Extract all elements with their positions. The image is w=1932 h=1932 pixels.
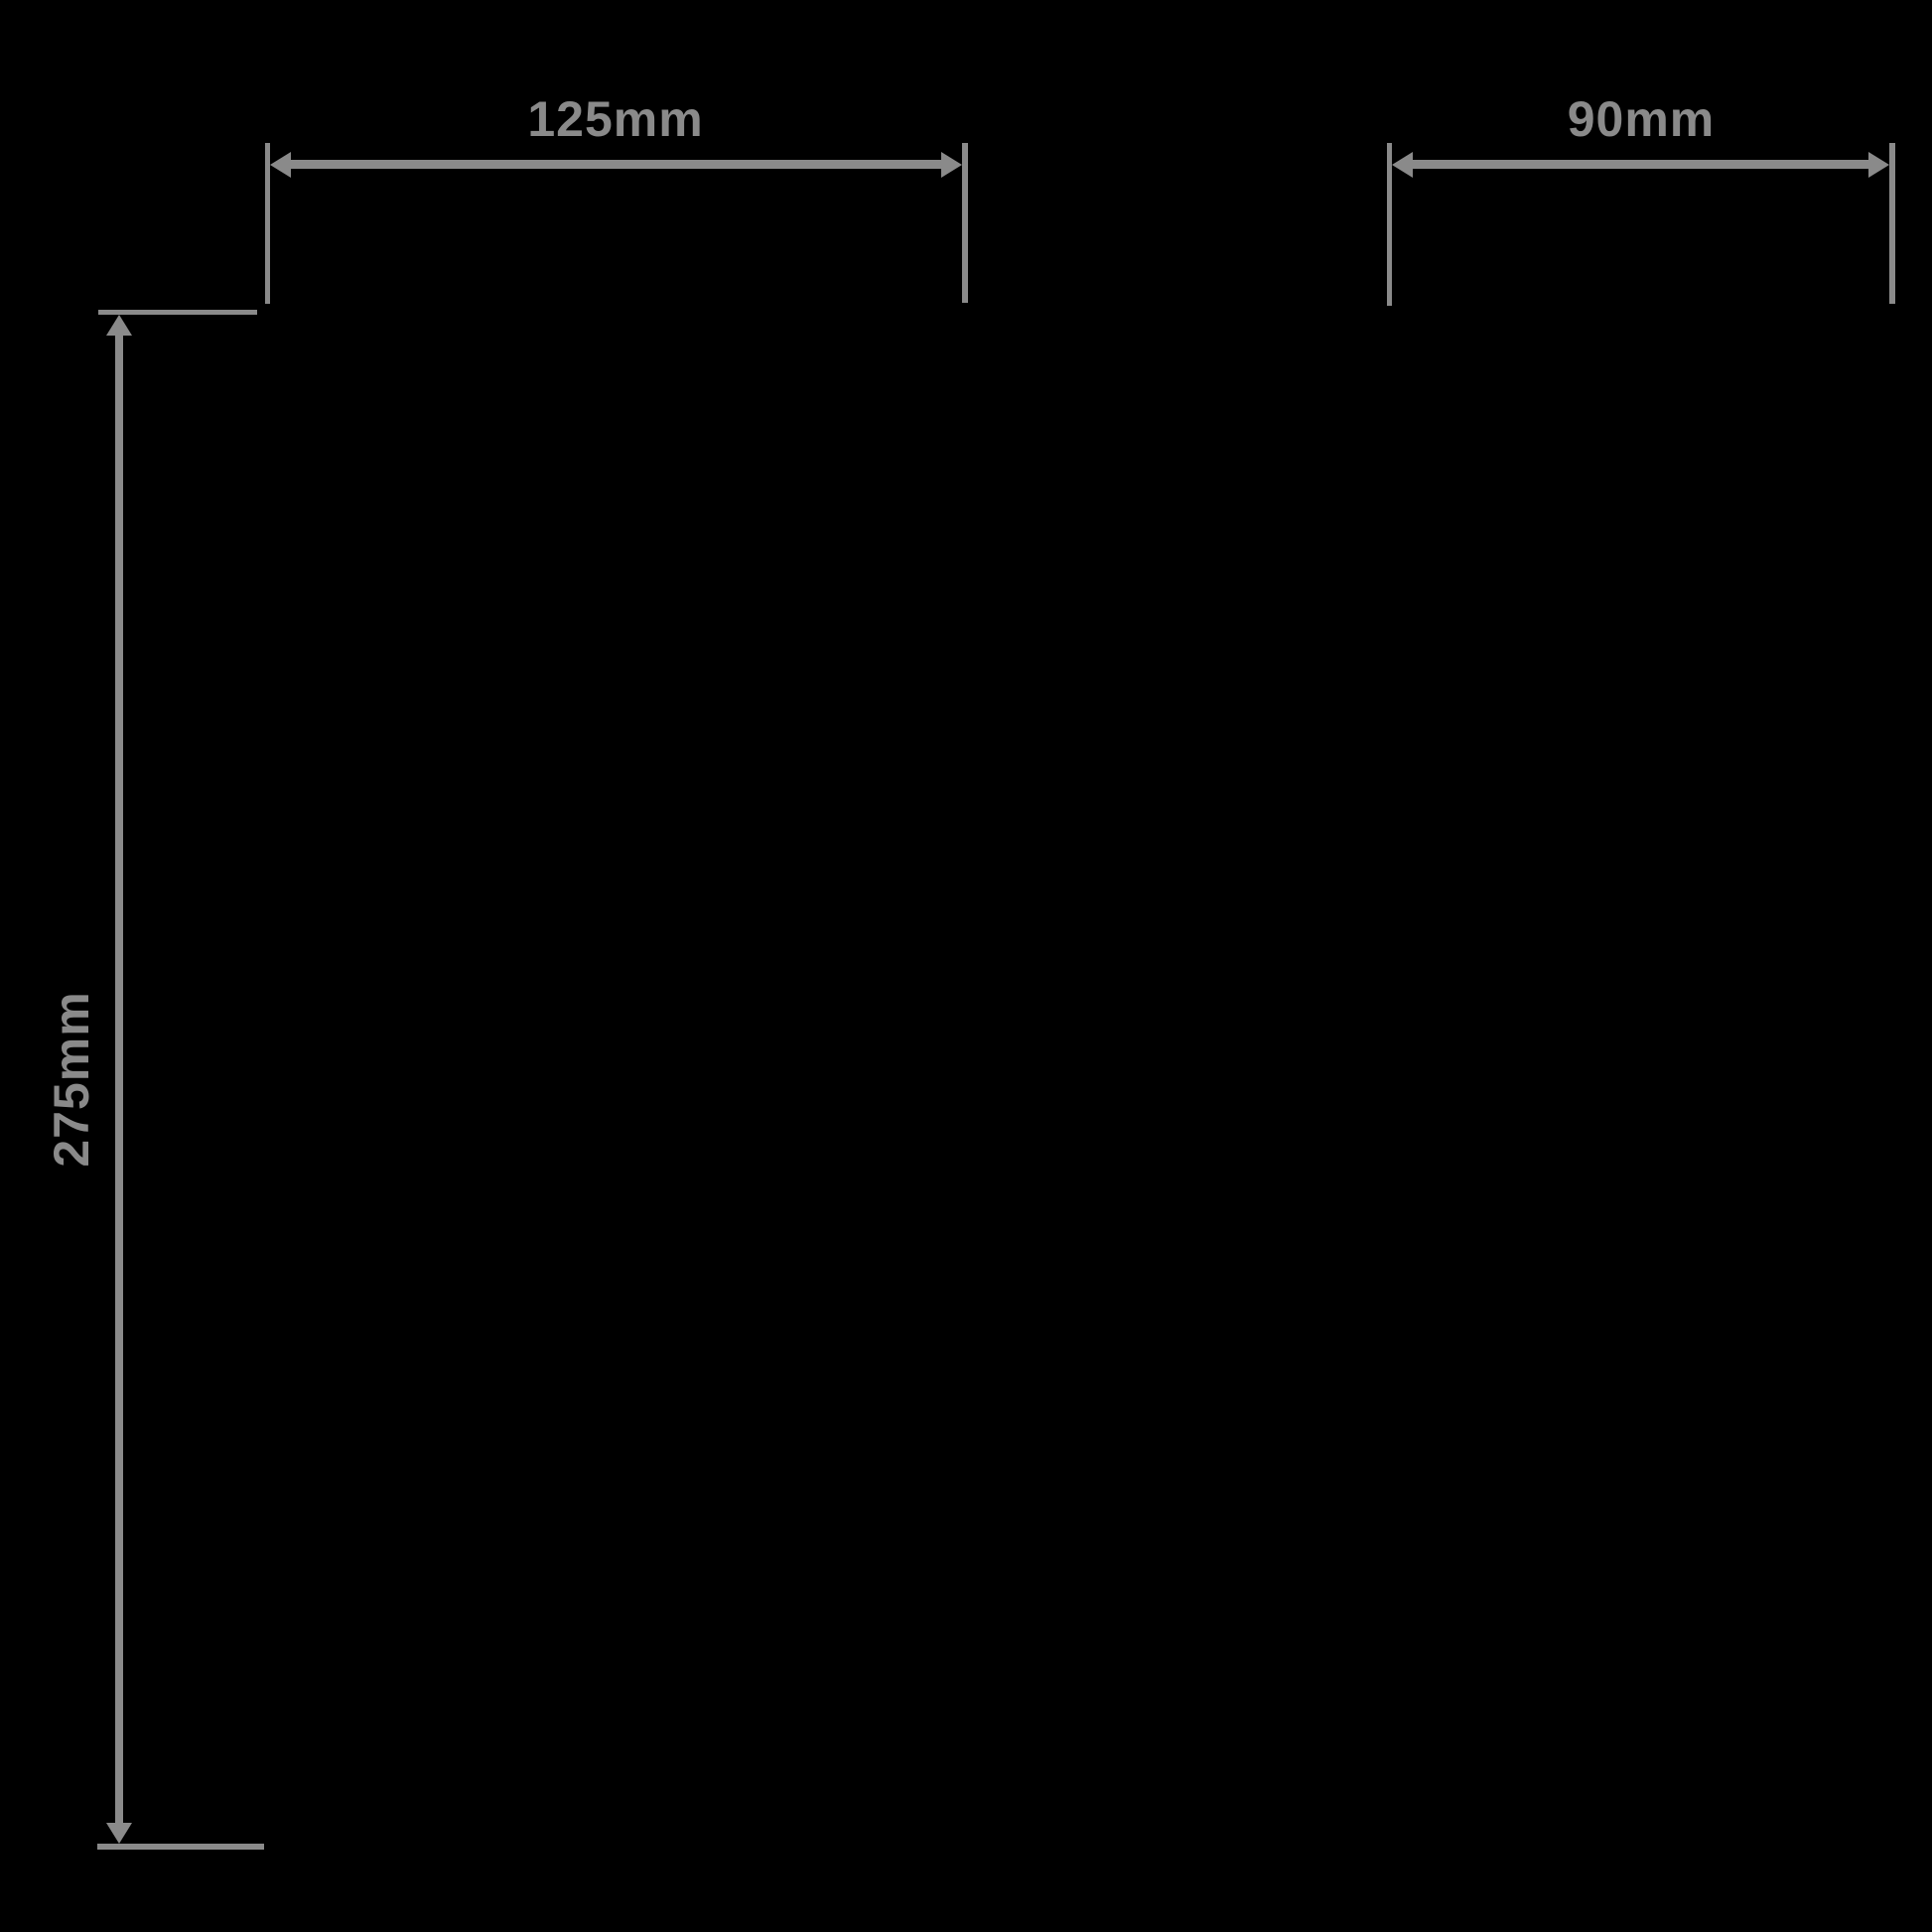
dimension-line [115,333,123,1827]
arrowhead-down-icon [106,1823,132,1844]
dimension-label-90mm: 90mm [1568,90,1716,148]
arrowhead-right-icon [941,152,962,178]
dimension-line [1410,160,1871,169]
extension-tick [1889,143,1895,304]
dimension-label-275mm: 275mm [43,991,100,1167]
extension-tick [97,1844,264,1850]
arrowhead-left-icon [270,152,291,178]
arrowhead-up-icon [106,315,132,336]
dimension-line [288,160,944,169]
extension-tick [962,143,968,303]
dimension-diagram: 125mm 90mm 275mm [0,0,1932,1932]
arrowhead-right-icon [1868,152,1889,178]
arrowhead-left-icon [1392,152,1413,178]
dimension-label-125mm: 125mm [527,90,703,148]
